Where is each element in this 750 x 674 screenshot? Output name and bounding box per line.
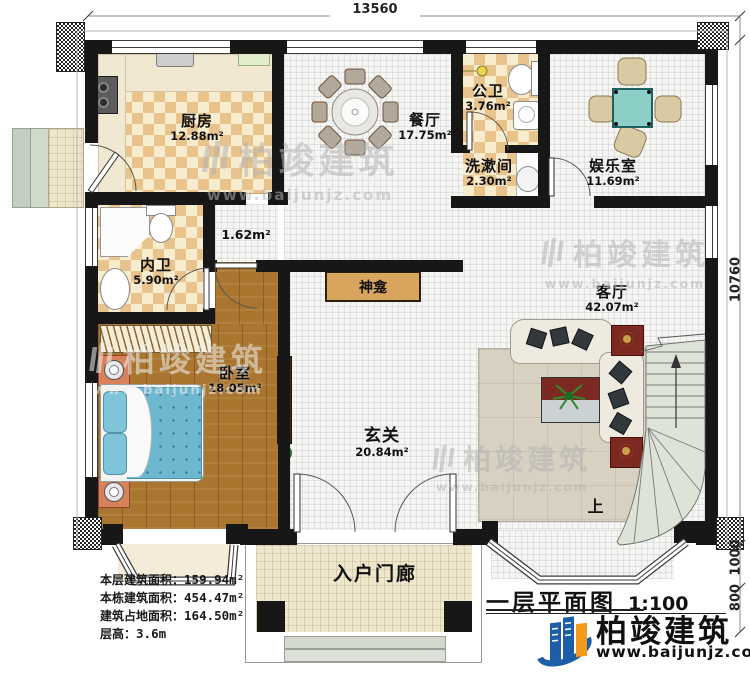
mahjong-table-set: [589, 58, 681, 159]
dining-table-set: [312, 69, 398, 155]
dimension-top-width: 13560: [330, 2, 420, 17]
staircase: [617, 334, 705, 545]
dimension-right-porch: 1000: [729, 534, 744, 582]
building-stats: 本层建筑面积：159.94m² 本栋建筑面积：454.47m² 建筑占地面积：1…: [100, 571, 244, 643]
mahjong-table: [613, 89, 652, 127]
door-public-bath: [467, 112, 508, 150]
door-hallway: [215, 263, 257, 308]
brand-website: www.baijunjz.com: [596, 643, 750, 661]
door-inner-bath: [167, 268, 209, 310]
ceiling-light-icon: [463, 66, 487, 76]
floor-plan: 神龛: [0, 0, 750, 674]
stats-row: 建筑占地面积：164.50m²: [100, 607, 244, 625]
door-kitchen-side: [88, 145, 136, 193]
brand-logo-icon: [528, 604, 594, 668]
stats-row: 层高：3.6m: [100, 625, 244, 643]
front-double-door: [294, 474, 456, 532]
stats-row: 本栋建筑面积：454.47m²: [100, 589, 244, 607]
living-bay-window: [489, 542, 686, 580]
stats-row: 本层建筑面积：159.94m²: [100, 571, 244, 589]
door-entertainment: [549, 158, 590, 196]
dimension-right-height: 10760: [729, 250, 744, 310]
plant-icon: [553, 385, 585, 409]
brand-block: 柏竣建筑 www.baijunjz.com: [528, 604, 750, 668]
